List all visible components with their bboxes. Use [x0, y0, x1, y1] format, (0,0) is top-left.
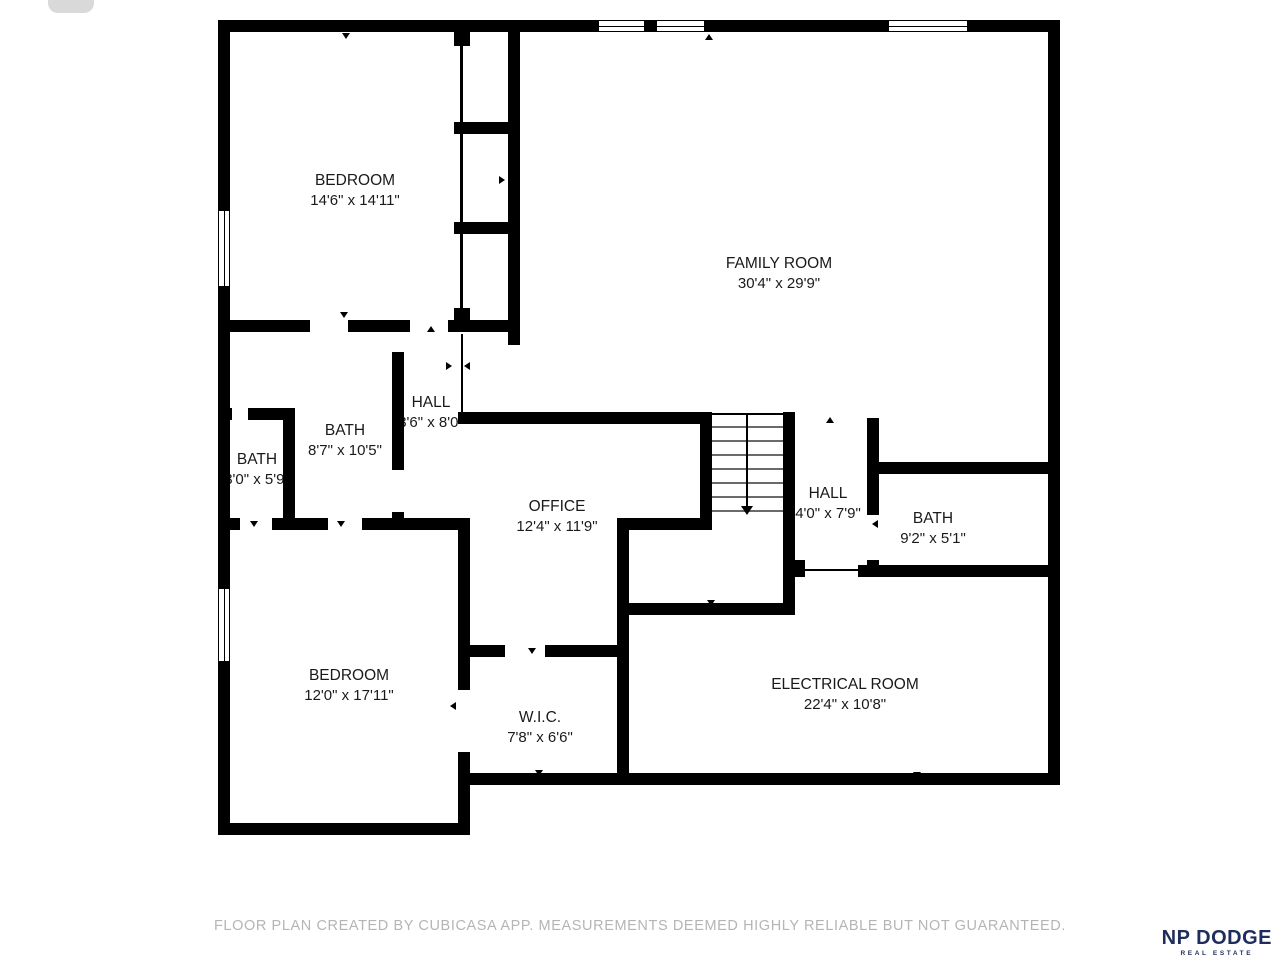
- interior-wall: [875, 462, 1060, 474]
- room-name: ELECTRICAL ROOM: [771, 675, 919, 695]
- door-arrow-icon: [913, 772, 921, 778]
- window: [218, 210, 230, 287]
- room-dims: 30'4" x 29'9": [726, 274, 832, 294]
- window: [598, 20, 645, 32]
- room-label-family-room: FAMILY ROOM30'4" x 29'9": [726, 254, 832, 294]
- room-dims: 22'4" x 10'8": [771, 695, 919, 715]
- stair-down-arrow-icon: [741, 506, 753, 515]
- closet-line: [460, 32, 463, 322]
- room-label-electrical-room: ELECTRICAL ROOM22'4" x 10'8": [771, 675, 919, 715]
- room-label-bedroom-2: BEDROOM12'0" x 17'11": [304, 666, 394, 706]
- door-arrow-icon: [872, 520, 878, 528]
- brand-name: NP DODGE: [1162, 928, 1272, 948]
- room-name: BATH: [224, 450, 290, 470]
- interior-wall: [700, 412, 712, 530]
- room-name: BATH: [900, 509, 966, 529]
- room-dims: 9'2" x 5'1": [900, 529, 966, 549]
- stair-tread: [712, 454, 783, 456]
- interior-wall: [454, 32, 470, 46]
- window: [888, 20, 968, 32]
- stair-tread: [712, 440, 783, 442]
- interior-wall: [458, 752, 470, 835]
- interior-wall: [454, 222, 512, 234]
- door-arrow-icon: [499, 176, 505, 184]
- room-label-wic: W.I.C.7'8" x 6'6": [507, 708, 573, 748]
- room-dims: 7'8" x 6'6": [507, 728, 573, 748]
- interior-wall: [458, 412, 712, 424]
- door-arrow-icon: [707, 600, 715, 606]
- stair-direction-line: [746, 415, 748, 507]
- brand-logo: NP DODGE REAL ESTATE: [1162, 928, 1272, 957]
- room-name: BEDROOM: [310, 171, 400, 191]
- stair-edge: [712, 413, 783, 415]
- door-arrow-icon: [450, 702, 456, 710]
- interior-wall: [783, 412, 795, 615]
- interior-wall: [458, 530, 470, 690]
- door-arrow-icon: [535, 770, 543, 776]
- room-dims: 4'0" x 7'9": [795, 504, 861, 524]
- brand-tagline: REAL ESTATE: [1162, 950, 1272, 957]
- door-arrow-icon: [957, 466, 965, 472]
- cubicasa-logo-fragment: [48, 0, 94, 13]
- room-name: HALL: [795, 484, 861, 504]
- room-label-bath-right: BATH9'2" x 5'1": [900, 509, 966, 549]
- room-name: BATH: [308, 421, 382, 441]
- stair-tread: [712, 482, 783, 484]
- door-arrow-icon: [446, 362, 452, 370]
- room-name: BEDROOM: [304, 666, 394, 686]
- room-label-bath-main: BATH8'7" x 10'5": [308, 421, 382, 461]
- interior-wall: [858, 565, 1060, 577]
- floor-transition-line: [803, 569, 858, 571]
- door-arrow-icon: [258, 414, 266, 420]
- exterior-wall-right: [1048, 20, 1060, 785]
- room-name: W.I.C.: [507, 708, 573, 728]
- interior-wall: [283, 420, 295, 530]
- room-label-office: OFFICE12'4" x 11'9": [516, 497, 597, 537]
- exterior-wall-bottom-right: [458, 773, 1060, 785]
- room-label-bath-small: BATH3'0" x 5'9": [224, 450, 290, 490]
- interior-wall: [508, 20, 520, 345]
- interior-wall: [617, 603, 795, 615]
- floor-transition-line: [461, 334, 463, 412]
- door-arrow-icon: [340, 312, 348, 318]
- stair-tread: [712, 426, 783, 428]
- room-dims: 14'6" x 14'11": [310, 191, 400, 211]
- footer-disclaimer: FLOOR PLAN CREATED BY CUBICASA APP. MEAS…: [0, 918, 1280, 934]
- room-label-hall-left: HALL3'6" x 8'0": [398, 393, 464, 433]
- door-arrow-icon: [337, 521, 345, 527]
- interior-wall: [617, 518, 629, 615]
- exterior-wall-left: [218, 20, 230, 835]
- interior-wall: [448, 320, 508, 332]
- interior-wall: [458, 645, 505, 657]
- floor-plan: BEDROOM14'6" x 14'11" FAMILY ROOM30'4" x…: [0, 0, 1280, 960]
- room-name: OFFICE: [516, 497, 597, 517]
- room-name: HALL: [398, 393, 464, 413]
- interior-wall: [218, 518, 240, 530]
- door-arrow-icon: [250, 521, 258, 527]
- door-arrow-icon: [464, 362, 470, 370]
- window: [656, 20, 705, 32]
- room-dims: 8'7" x 10'5": [308, 441, 382, 461]
- door-arrow-icon: [705, 34, 713, 40]
- interior-wall: [248, 408, 295, 420]
- stair-tread: [712, 496, 783, 498]
- room-dims: 3'0" x 5'9": [224, 470, 290, 490]
- interior-wall: [348, 320, 410, 332]
- door-arrow-icon: [427, 326, 435, 332]
- interior-wall: [218, 320, 310, 332]
- room-label-hall-right: HALL4'0" x 7'9": [795, 484, 861, 524]
- exterior-wall-bottom-left: [218, 823, 470, 835]
- interior-wall: [454, 122, 512, 134]
- interior-wall: [392, 352, 404, 470]
- interior-wall: [795, 565, 805, 577]
- interior-wall: [272, 518, 328, 530]
- door-arrow-icon: [528, 648, 536, 654]
- interior-wall: [218, 408, 232, 420]
- room-dims: 3'6" x 8'0": [398, 413, 464, 433]
- room-dims: 12'0" x 17'11": [304, 686, 394, 706]
- room-dims: 12'4" x 11'9": [516, 517, 597, 537]
- window: [218, 588, 230, 662]
- door-arrow-icon: [826, 417, 834, 423]
- room-label-bedroom-1: BEDROOM14'6" x 14'11": [310, 171, 400, 211]
- interior-wall: [617, 615, 629, 785]
- interior-wall: [362, 518, 470, 530]
- stair-tread: [712, 468, 783, 470]
- door-arrow-icon: [342, 33, 350, 39]
- interior-wall: [545, 645, 622, 657]
- room-name: FAMILY ROOM: [726, 254, 832, 274]
- interior-wall: [617, 518, 712, 530]
